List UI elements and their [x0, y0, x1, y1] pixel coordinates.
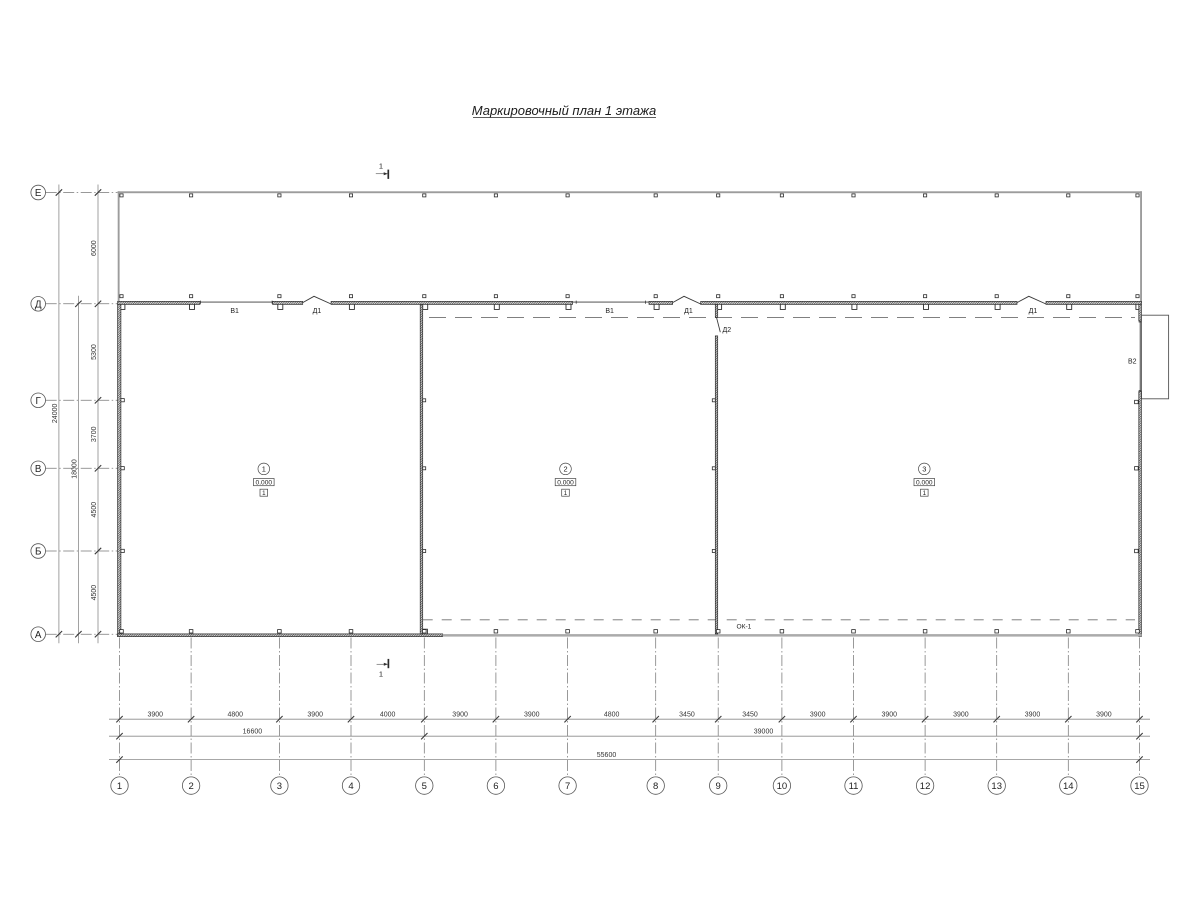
- svg-text:3: 3: [922, 465, 926, 474]
- svg-text:В: В: [35, 464, 42, 475]
- svg-text:10: 10: [777, 781, 788, 792]
- svg-text:11: 11: [849, 781, 859, 792]
- svg-text:А: А: [35, 630, 42, 641]
- svg-text:9: 9: [716, 781, 721, 792]
- svg-text:Д1: Д1: [313, 308, 322, 315]
- svg-text:Д2: Д2: [723, 327, 732, 334]
- svg-text:Б: Б: [35, 547, 41, 558]
- svg-text:0.000: 0.000: [256, 479, 273, 486]
- svg-text:3900: 3900: [148, 712, 164, 719]
- svg-text:Е: Е: [35, 188, 42, 199]
- svg-text:3900: 3900: [307, 712, 323, 719]
- svg-text:Д1: Д1: [1029, 308, 1038, 315]
- svg-text:4000: 4000: [380, 712, 396, 719]
- svg-text:2: 2: [188, 781, 193, 792]
- svg-text:3900: 3900: [1025, 712, 1041, 719]
- svg-text:3900: 3900: [1096, 712, 1112, 719]
- svg-text:3900: 3900: [953, 712, 969, 719]
- svg-text:В2: В2: [1128, 359, 1137, 366]
- svg-text:7: 7: [565, 781, 570, 792]
- svg-text:Д: Д: [35, 299, 42, 310]
- svg-text:3900: 3900: [810, 712, 826, 719]
- svg-text:1: 1: [262, 465, 266, 474]
- svg-text:0.000: 0.000: [557, 479, 574, 486]
- svg-text:ОК-1: ОК-1: [737, 624, 752, 631]
- svg-text:0.000: 0.000: [916, 479, 933, 486]
- svg-text:3450: 3450: [679, 712, 695, 719]
- svg-text:1: 1: [262, 490, 266, 497]
- svg-text:13: 13: [991, 781, 1002, 792]
- svg-text:В1: В1: [230, 308, 239, 315]
- svg-text:6: 6: [493, 781, 498, 792]
- svg-text:39000: 39000: [754, 729, 774, 736]
- svg-text:3900: 3900: [452, 712, 468, 719]
- svg-text:1: 1: [379, 670, 383, 679]
- svg-text:3: 3: [277, 781, 282, 792]
- svg-text:15: 15: [1134, 781, 1145, 792]
- svg-text:4800: 4800: [227, 712, 243, 719]
- svg-text:1: 1: [379, 162, 383, 171]
- svg-text:55600: 55600: [597, 752, 617, 759]
- svg-text:12: 12: [920, 781, 931, 792]
- svg-text:14: 14: [1063, 781, 1074, 792]
- svg-text:1: 1: [564, 490, 568, 497]
- svg-text:4800: 4800: [604, 712, 620, 719]
- svg-text:2: 2: [563, 465, 567, 474]
- svg-text:Маркировочный план 1 этажа: Маркировочный план 1 этажа: [472, 103, 657, 118]
- svg-text:1: 1: [923, 490, 927, 497]
- svg-text:4500: 4500: [91, 585, 98, 601]
- svg-text:8: 8: [653, 781, 658, 792]
- svg-text:16600: 16600: [243, 729, 263, 736]
- svg-text:3900: 3900: [882, 712, 898, 719]
- svg-text:4: 4: [348, 781, 353, 792]
- svg-text:18000: 18000: [71, 459, 78, 479]
- svg-text:Г: Г: [36, 396, 42, 407]
- svg-text:1: 1: [117, 781, 122, 792]
- svg-text:3450: 3450: [742, 712, 758, 719]
- svg-text:24000: 24000: [52, 404, 59, 424]
- svg-text:6000: 6000: [91, 240, 98, 256]
- svg-text:4500: 4500: [91, 502, 98, 518]
- svg-text:5: 5: [422, 781, 427, 792]
- svg-text:Д1: Д1: [684, 308, 693, 315]
- svg-text:3900: 3900: [524, 712, 540, 719]
- svg-text:В1: В1: [605, 308, 614, 315]
- svg-text:3700: 3700: [91, 426, 98, 442]
- svg-text:5300: 5300: [91, 344, 98, 360]
